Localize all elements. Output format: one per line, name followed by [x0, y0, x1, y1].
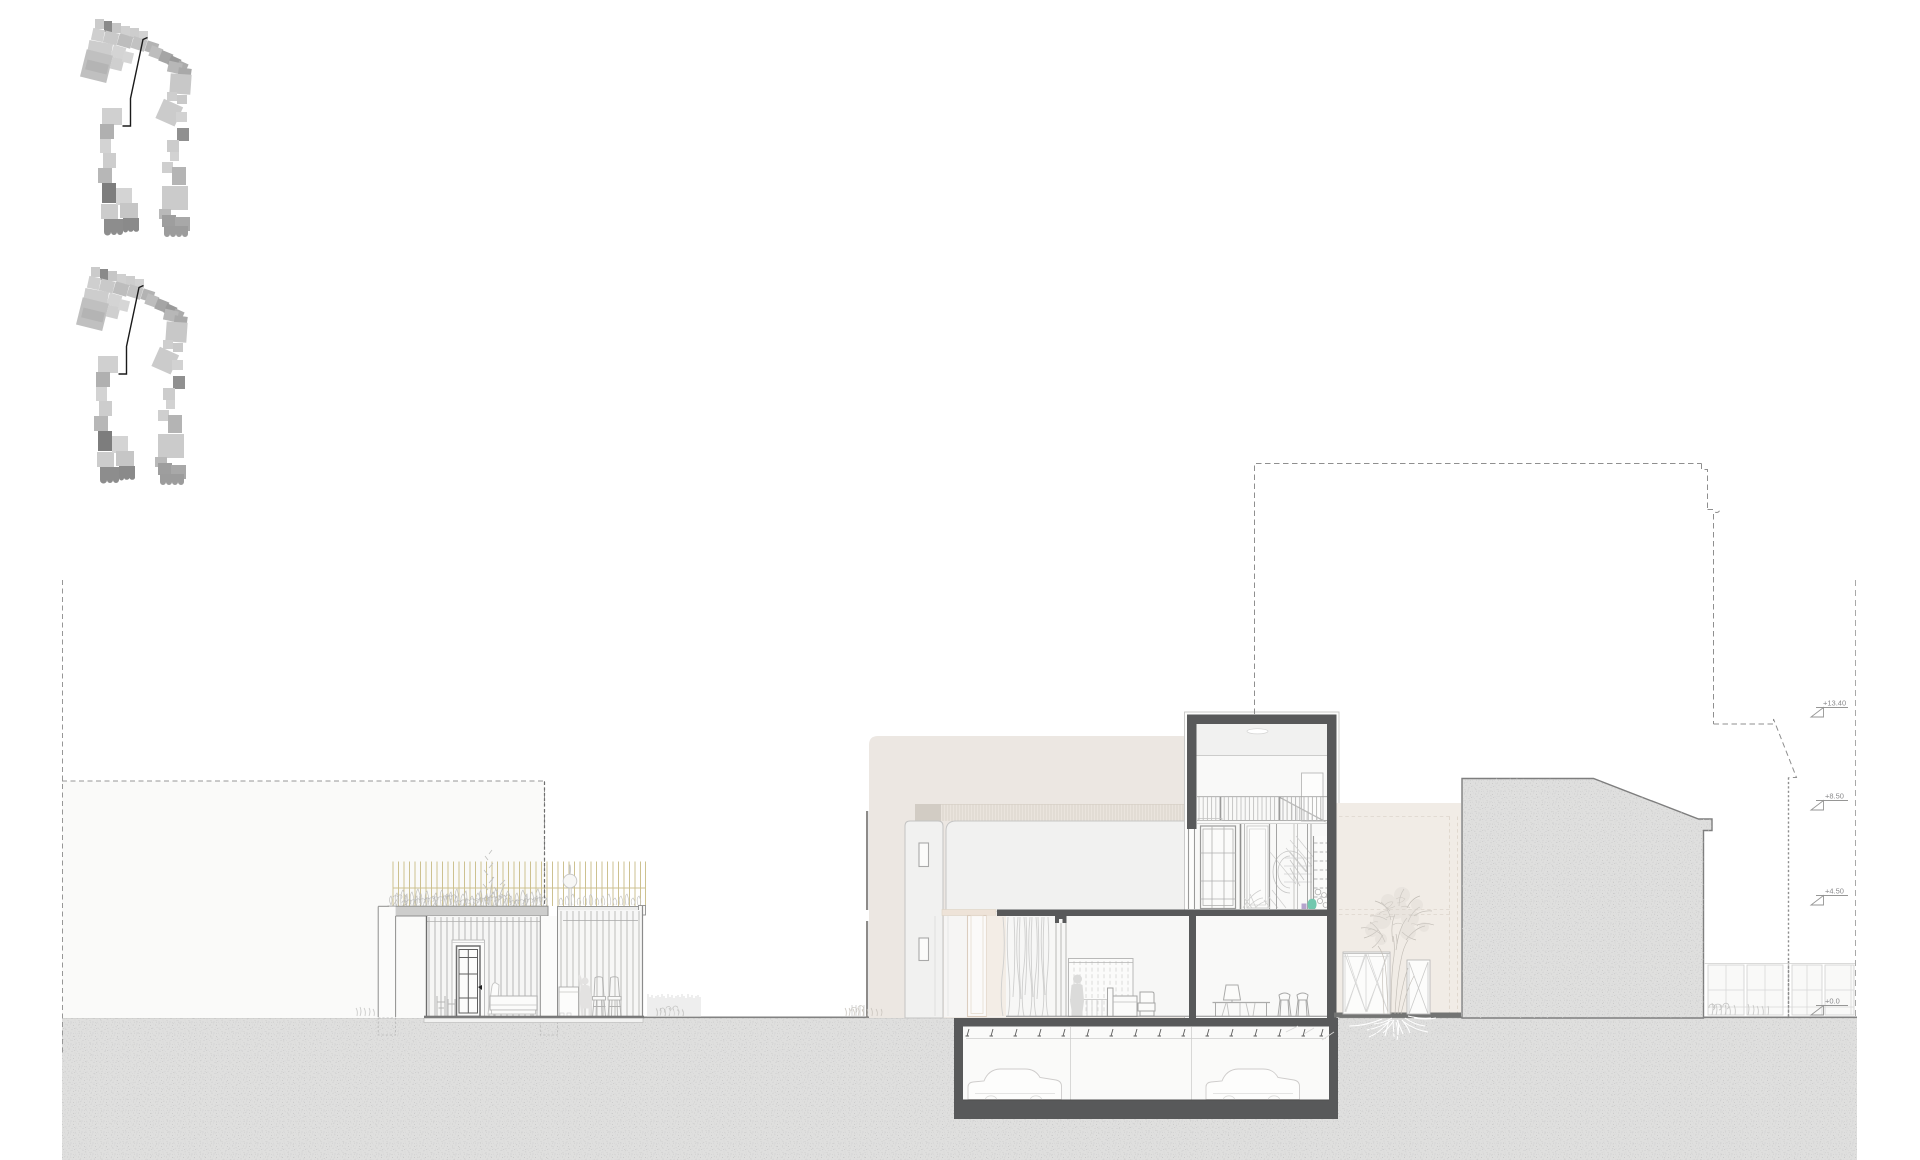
- svg-text:+8.50: +8.50: [1825, 792, 1844, 801]
- svg-text:+0.0: +0.0: [1825, 997, 1840, 1006]
- svg-text:+13.40: +13.40: [1823, 699, 1846, 708]
- svg-text:+4.50: +4.50: [1825, 887, 1844, 896]
